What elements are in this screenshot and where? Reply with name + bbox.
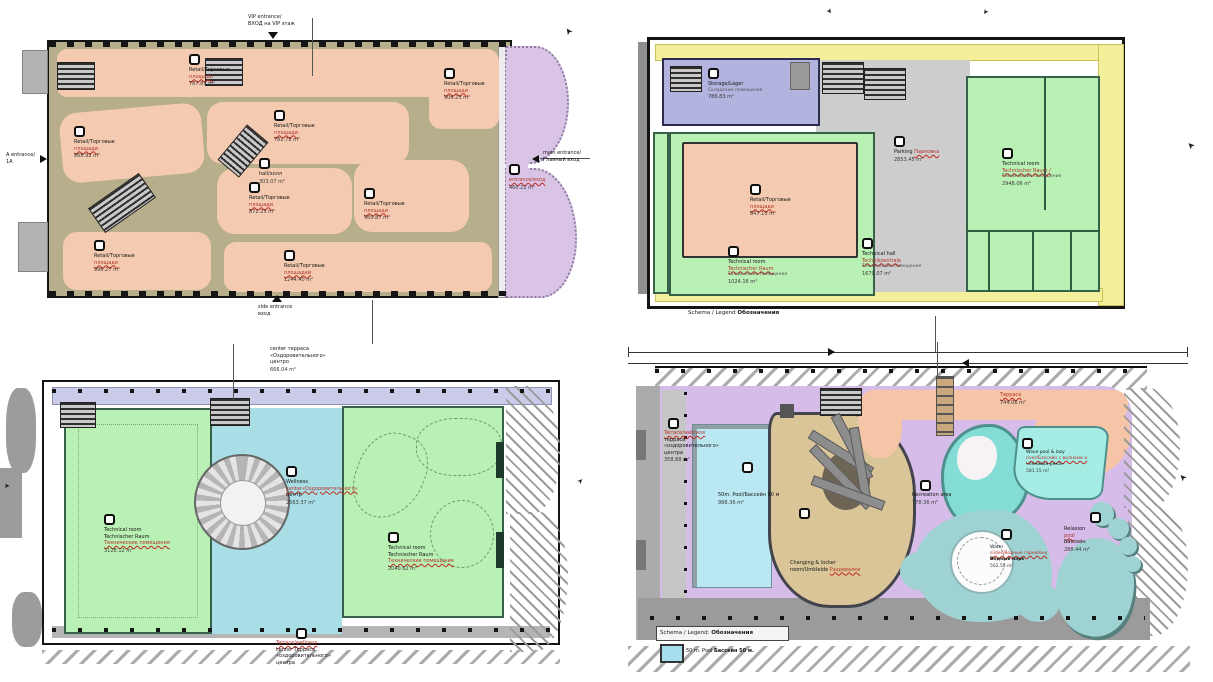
technical-room-label: Technical room Technischer Raum Техничес… <box>104 514 170 554</box>
room-label: Retail/Торговые площади 906.23 m² <box>444 68 485 102</box>
floor-plans-sheet: Retail/Торговые площади 787.81 m² Retail… <box>0 0 1213 682</box>
exterior-structure <box>22 50 48 94</box>
technical-room-label: Technical room Technischer Raum Техничес… <box>388 532 454 572</box>
terrace-note: Terrace/wellness center Терраса «оздоров… <box>276 640 331 666</box>
room-label: Retail/Торговые площади 787.81 m² <box>189 54 230 88</box>
a-entrance-note: A entrance/ 1A <box>6 152 35 165</box>
ladder-icon <box>936 376 954 436</box>
facade-ticks <box>49 42 510 47</box>
room-marker-icon <box>894 136 905 147</box>
room-marker-icon <box>668 418 679 429</box>
escalator-icon <box>864 68 906 100</box>
section-line <box>935 316 936 352</box>
dashed-outline <box>416 418 502 476</box>
partition-wall <box>1032 230 1034 292</box>
water-slides-label: Water slides/Водные горки/вну Водный пар… <box>990 545 1047 569</box>
room-marker-icon <box>708 68 719 79</box>
room-marker-icon <box>742 462 753 473</box>
hall-label: hall/холл 303.07 m² <box>259 158 285 185</box>
room-marker-icon <box>296 628 307 639</box>
room-marker-icon <box>286 466 297 477</box>
changing-room-label: Changing & locker room/Umkleide Раздевал… <box>790 560 861 573</box>
dimension-tick <box>1187 347 1188 357</box>
spiral-stair-structure <box>194 454 290 550</box>
room-marker-icon <box>259 158 270 169</box>
partition-wall <box>1044 76 1046 210</box>
escalator-icon <box>57 62 95 90</box>
exterior-structure <box>18 222 48 272</box>
escalator-icon <box>88 173 156 233</box>
wall-notch <box>636 430 646 460</box>
room-label: Retail/Торговые площадей 1244.40 m² <box>284 250 325 284</box>
entrance-arrow-icon <box>40 155 47 163</box>
relaxation-pool-toe <box>1119 537 1137 555</box>
dimension-arrow-icon <box>962 359 969 367</box>
side-entrance-note: side entrance вход <box>258 304 292 317</box>
leader-line <box>937 342 938 376</box>
vip-entrance-note: VIP entrance/ ВХОД на VIP этаж <box>248 14 295 27</box>
facade-ticks <box>650 616 1145 620</box>
room-label: Retail/Торговые площади 782.78 m² <box>274 110 315 144</box>
landscape-hatch <box>1124 388 1180 508</box>
room-marker-icon <box>274 110 285 121</box>
relaxation-pool-toe <box>1125 556 1141 572</box>
parking-label: Parking Парковка 2853.45 m² <box>894 136 939 163</box>
dimension-line <box>628 352 1188 353</box>
room-label: Retail/Торговые площади 996.27 m² <box>94 240 135 274</box>
yellow-zone <box>1098 44 1124 306</box>
entrance-hall-label: entrance/вход 460.22 m² <box>509 164 545 191</box>
escalator-icon <box>822 62 864 94</box>
room-marker-icon <box>1022 438 1033 449</box>
plan-c-building: Technical room Technischer Raum Техничес… <box>42 380 560 645</box>
partition-wall <box>988 230 990 292</box>
room-marker-icon <box>94 240 105 251</box>
terrace-label: Terrace/wellness терраса «оздоровительно… <box>664 430 719 464</box>
room-marker-icon <box>189 54 200 65</box>
exterior-structure <box>6 388 36 473</box>
section-arrow-icon: ➤ <box>1186 139 1198 151</box>
partition-wall <box>1070 230 1072 292</box>
retail-room <box>63 232 211 290</box>
technical-room-label: Technical room Technischer Raum Техничес… <box>728 246 787 285</box>
legend-title: Schema / Legend Обозначения <box>688 310 779 317</box>
relaxation-pool-toe <box>1108 518 1129 539</box>
stair-core <box>790 62 810 90</box>
section-arrow-icon: ➤ <box>4 483 10 490</box>
room-marker-icon <box>509 164 520 175</box>
recreation-label: Recreation area 778.36 m² <box>912 492 951 506</box>
dimension-arrow-icon <box>828 348 835 356</box>
terrace-note: center терраса «Оздоровительного» центро… <box>270 346 326 373</box>
retail-room <box>224 242 492 292</box>
exterior-structure <box>12 592 42 647</box>
entrance-arrow-icon <box>268 32 278 39</box>
water-slides-pool <box>900 552 938 590</box>
legend-title: Schema / Legend: Обозначения <box>656 626 789 641</box>
room-marker-icon <box>1001 529 1012 540</box>
plan-a-building: Retail/Торговые площади 787.81 m² Retail… <box>47 40 512 298</box>
terrace-band <box>858 392 902 458</box>
technical-room-label: Technical room Technischer Raum / Технич… <box>1002 148 1061 187</box>
escalator-icon <box>210 398 250 426</box>
storage-label: Storage/Lager Складские помещения 786.83… <box>708 68 762 101</box>
door-jamb <box>496 532 504 568</box>
dimension-line <box>628 363 1188 364</box>
section-line <box>372 300 373 344</box>
exterior-wall <box>638 42 647 294</box>
room-marker-icon <box>862 238 873 249</box>
room-marker-icon <box>388 532 399 543</box>
escalator-icon <box>670 66 702 92</box>
section-arrow-icon: ➤ <box>1178 471 1190 483</box>
door-jamb <box>496 442 504 478</box>
relaxation-pool-label: Relaxion pool Бассейн 288.44 m² <box>1064 526 1090 553</box>
room-label: Retail/Торговые площади 960.87 m² <box>364 188 405 222</box>
legend-pool-swatch <box>660 644 684 663</box>
room-marker-icon <box>284 250 295 261</box>
room-marker-icon <box>104 514 115 525</box>
leader-line <box>233 344 234 400</box>
entrance-arrow-icon <box>272 295 282 302</box>
wellness-label: Wellness center«Оздоровительного» центр … <box>286 466 358 506</box>
room-label: Retail/Торговые площади 847.13 m² <box>750 184 791 218</box>
pool-label: 50m. Pool/Бассейн 50 м 988.36 m² <box>718 492 779 506</box>
terrace-label: Терраса 744.06 m² <box>1000 392 1026 406</box>
room-label: Retail/Торговые площади 872.23 m² <box>249 182 290 216</box>
wave-pool-label: Wave pool & lazy river/Бассейн с волнами… <box>1026 450 1087 474</box>
section-arrow-icon: ➤ <box>824 7 833 16</box>
technical-hall-label: Technical hall Technikzentrale Техническ… <box>862 238 921 277</box>
escalator-icon <box>820 388 862 416</box>
dimension-tick <box>628 347 629 357</box>
section-arrow-icon: ➤ <box>564 25 576 36</box>
stair-core <box>780 404 794 418</box>
room-marker-icon <box>364 188 375 199</box>
room-marker-icon <box>750 184 761 195</box>
wall-notch <box>636 540 646 570</box>
legend-pool-label: 50 m. Pool Бассейн 50 м. <box>686 648 754 655</box>
room-marker-icon <box>444 68 455 79</box>
room-marker-icon <box>920 480 931 491</box>
room-marker-icon <box>799 508 810 519</box>
technical-strip <box>653 132 669 294</box>
facade-ticks <box>684 392 687 600</box>
escalator-icon <box>60 402 96 428</box>
facade-ticks <box>52 389 550 393</box>
room-marker-icon <box>1090 512 1101 523</box>
room-marker-icon <box>728 246 739 257</box>
entrance-arrow-icon <box>532 155 539 163</box>
section-arrow-icon: ➤ <box>980 7 989 16</box>
leader-line <box>312 18 313 76</box>
plan-b-building: Storage/Lager Складские помещения 786.83… <box>647 37 1125 309</box>
section-arrow-icon: ➤ <box>576 477 585 486</box>
stair-core <box>220 480 266 526</box>
exterior-structure <box>0 468 22 538</box>
facade-ticks <box>655 369 1147 373</box>
room-marker-icon <box>74 126 85 137</box>
room-marker-icon <box>1002 148 1013 159</box>
escalator-icon <box>820 388 860 414</box>
main-entrance-note: main entrance/ Главный вход <box>543 150 581 163</box>
room-label: Retail/Торговые площади 868.92 m² <box>74 126 115 160</box>
